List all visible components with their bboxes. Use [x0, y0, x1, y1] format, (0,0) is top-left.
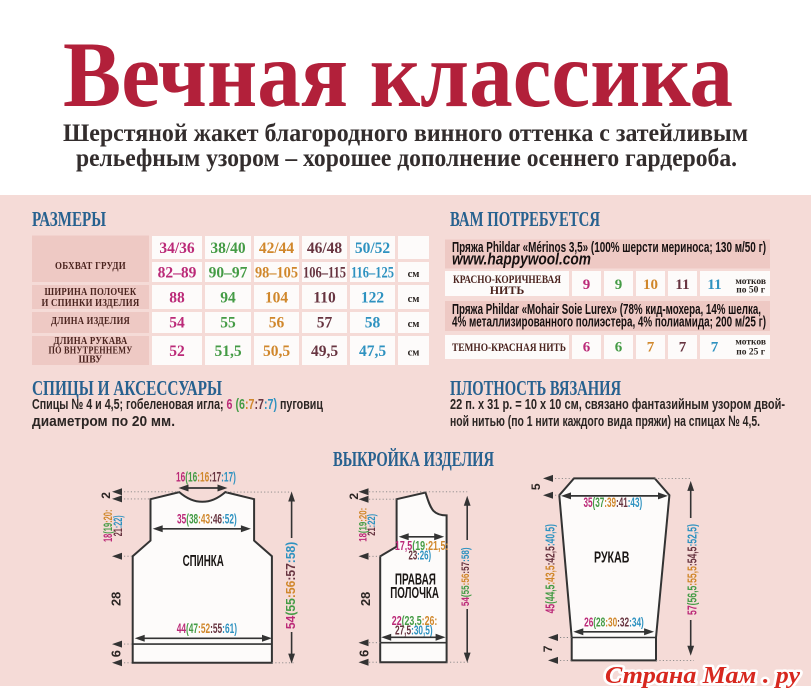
svg-text:РУКАВ: РУКАВ — [594, 550, 629, 567]
svg-text:21:22): 21:22) — [366, 514, 379, 536]
svg-text:7: 7 — [679, 340, 687, 356]
svg-text:21:22): 21:22) — [113, 515, 126, 536]
svg-text:Спицы № 4 и 4,5; гобеленовая и: Спицы № 4 и 4,5; гобеленовая игла; 6 (6:… — [32, 395, 323, 412]
svg-text:50,5: 50,5 — [263, 343, 290, 360]
svg-text:2: 2 — [347, 493, 361, 500]
svg-text:ной нитью (по 1 нити каждого в: ной нитью (по 1 нити каждого вида пряжи)… — [450, 413, 760, 430]
svg-text:57(56,5:55,5:54,5:52,5): 57(56,5:55,5:54,5:52,5) — [686, 524, 700, 615]
svg-text:34/36: 34/36 — [159, 240, 195, 257]
svg-text:Вечная классика: Вечная классика — [63, 24, 733, 127]
svg-text:рельефным узором – хорошее доп: рельефным узором – хорошее дополнение ос… — [76, 145, 737, 172]
svg-text:ОБХВАТ ГРУДИ: ОБХВАТ ГРУДИ — [55, 261, 126, 272]
svg-text:44(47:52:55:61): 44(47:52:55:61) — [177, 622, 237, 636]
svg-text:4% металлизированного полиэсте: 4% металлизированного полиэстера, 4% пол… — [452, 315, 766, 331]
svg-text:7: 7 — [647, 340, 655, 356]
svg-text:49,5: 49,5 — [311, 343, 338, 360]
svg-text:110: 110 — [313, 290, 336, 307]
svg-text:2: 2 — [99, 492, 113, 499]
svg-text:57: 57 — [317, 315, 333, 332]
svg-text:42/44: 42/44 — [259, 240, 295, 257]
svg-text:23:26): 23:26) — [409, 550, 432, 563]
svg-text:Страна Мам . ру: Страна Мам . ру — [605, 663, 800, 689]
svg-text:СПИНКА: СПИНКА — [183, 553, 224, 570]
svg-text:45(44,5:43,5:42,5:40,5): 45(44,5:43,5:42,5:40,5) — [544, 524, 558, 614]
svg-text:35(38:43:46:52): 35(38:43:46:52) — [177, 513, 237, 527]
svg-text:РАЗМЕРЫ: РАЗМЕРЫ — [32, 207, 106, 231]
svg-text:10: 10 — [643, 277, 658, 293]
svg-text:54: 54 — [169, 315, 185, 332]
svg-text:52: 52 — [169, 343, 185, 360]
svg-text:38/40: 38/40 — [210, 240, 246, 257]
svg-text:см: см — [408, 319, 420, 330]
svg-text:6: 6 — [615, 340, 623, 356]
svg-text:26(28:30:32:34): 26(28:30:32:34) — [584, 616, 644, 630]
svg-text:22 п. х 31 р. = 10 х 10 см, св: 22 п. х 31 р. = 10 х 10 см, связано фант… — [450, 396, 785, 413]
svg-text:28: 28 — [358, 592, 373, 606]
svg-text:16(16:16:17:17): 16(16:16:17:17) — [176, 471, 236, 485]
svg-text:122: 122 — [361, 290, 385, 307]
svg-text:9: 9 — [583, 277, 591, 293]
svg-text:54(55:56:57:58): 54(55:56:57:58) — [284, 542, 298, 629]
svg-text:по 25 г: по 25 г — [736, 348, 765, 358]
svg-text:98–105: 98–105 — [255, 265, 298, 282]
svg-text:28: 28 — [109, 592, 124, 606]
svg-text:И СПИНКИ ИЗДЕЛИЯ: И СПИНКИ ИЗДЕЛИЯ — [42, 298, 140, 309]
svg-text:46/48: 46/48 — [307, 240, 343, 257]
svg-text:5: 5 — [529, 483, 543, 490]
svg-text:82–89: 82–89 — [158, 265, 197, 282]
svg-text:см: см — [408, 294, 420, 305]
svg-text:НИТЬ: НИТЬ — [490, 283, 525, 297]
svg-text:6: 6 — [109, 650, 124, 657]
svg-text:106–115: 106–115 — [303, 265, 346, 282]
svg-text:116–125: 116–125 — [351, 265, 394, 282]
svg-text:55: 55 — [220, 315, 236, 332]
svg-text:47,5: 47,5 — [359, 343, 386, 360]
svg-text:ШВУ: ШВУ — [79, 355, 103, 366]
svg-text:50/52: 50/52 — [355, 240, 391, 257]
svg-text:88: 88 — [169, 290, 185, 307]
svg-text:ВЫКРОЙКА ИЗДЕЛИЯ: ВЫКРОЙКА ИЗДЕЛИЯ — [333, 447, 494, 471]
svg-text:35(37:39:41:43): 35(37:39:41:43) — [584, 496, 643, 511]
svg-text:ТЕМНО-КРАСНАЯ НИТЬ: ТЕМНО-КРАСНАЯ НИТЬ — [452, 340, 566, 354]
svg-text:6: 6 — [583, 340, 591, 356]
svg-text:90–97: 90–97 — [209, 265, 248, 282]
svg-text:мотков: мотков — [735, 338, 766, 348]
svg-text:ШИРИНА ПОЛОЧЕК: ШИРИНА ПОЛОЧЕК — [45, 287, 137, 298]
svg-text:ВАМ ПОТРЕБУЕТСЯ: ВАМ ПОТРЕБУЕТСЯ — [450, 207, 600, 231]
svg-text:ДЛИНА ИЗДЕЛИЯ: ДЛИНА ИЗДЕЛИЯ — [51, 316, 130, 327]
svg-text:58: 58 — [365, 315, 381, 332]
svg-text:51,5: 51,5 — [214, 343, 241, 360]
svg-text:диаметром по 20 мм.: диаметром по 20 мм. — [32, 413, 175, 430]
svg-text:см: см — [408, 348, 420, 359]
svg-text:54(55:56:57:58): 54(55:56:57:58) — [460, 547, 473, 606]
svg-text:94: 94 — [220, 290, 236, 307]
svg-text:по 50 г: по 50 г — [736, 286, 765, 296]
svg-text:ПОЛОЧКА: ПОЛОЧКА — [390, 585, 439, 602]
svg-text:Шерстяной жакет благородного в: Шерстяной жакет благородного винного отт… — [63, 120, 748, 147]
svg-text:11: 11 — [675, 277, 689, 293]
svg-text:9: 9 — [615, 277, 623, 293]
svg-text:56: 56 — [269, 315, 285, 332]
svg-text:www.happywool.com: www.happywool.com — [452, 251, 591, 269]
svg-text:7: 7 — [711, 340, 719, 356]
svg-text:104: 104 — [265, 290, 289, 307]
svg-text:см: см — [408, 269, 420, 280]
svg-text:6: 6 — [357, 650, 372, 657]
svg-text:11: 11 — [707, 277, 721, 293]
svg-text:27,5:30,5): 27,5:30,5) — [395, 624, 433, 638]
svg-text:7: 7 — [541, 645, 555, 652]
